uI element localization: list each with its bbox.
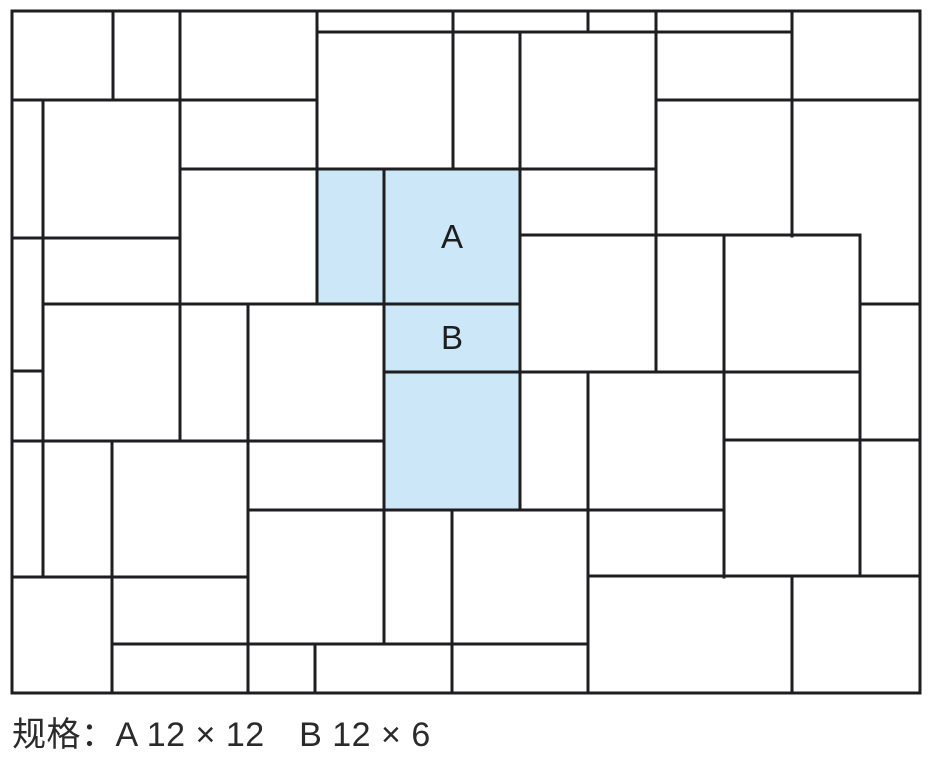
tile-label-a: A [441, 218, 463, 255]
highlight-tile-a-lower [384, 371, 520, 510]
tile-pattern-figure: AB 规格：A 12 × 12 B 12 × 6 [0, 0, 928, 772]
tile-layout-svg: AB [0, 0, 928, 700]
tile-label-b: B [441, 319, 463, 356]
spec-caption: 规格：A 12 × 12 B 12 × 6 [12, 714, 431, 757]
highlight-tile-b-vertical [317, 169, 384, 304]
